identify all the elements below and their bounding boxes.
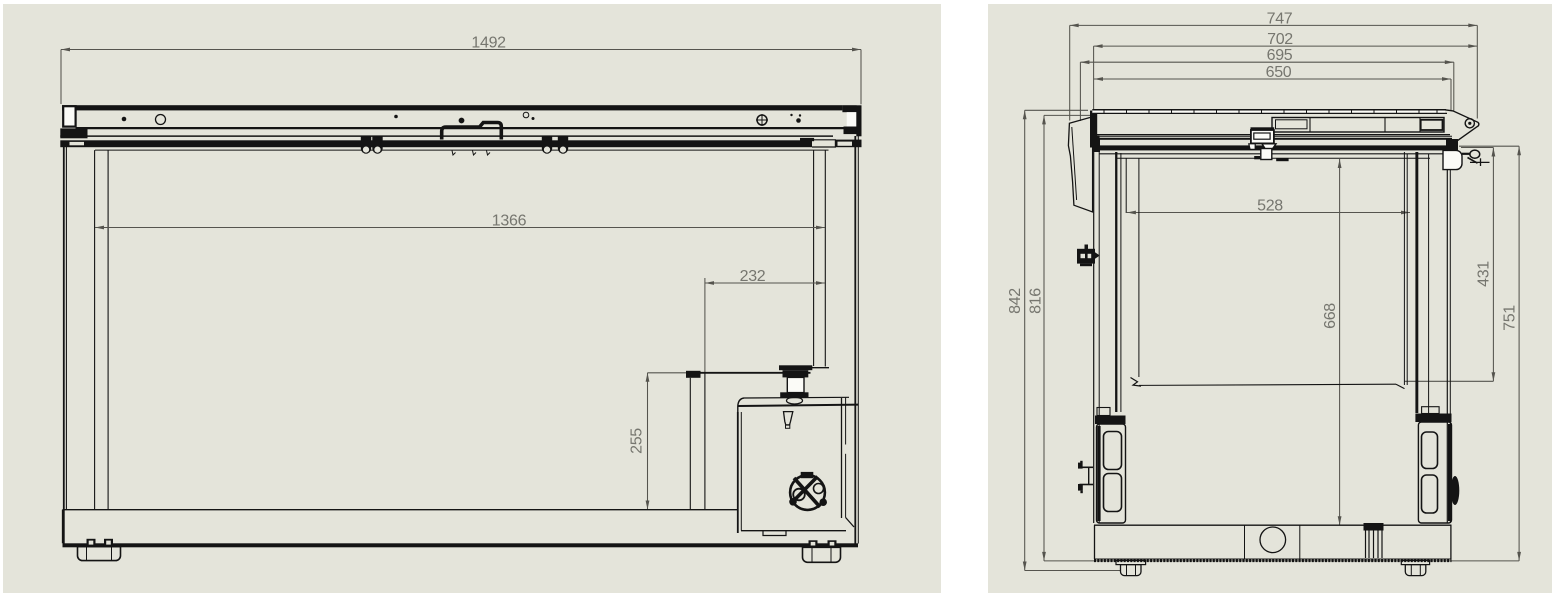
svg-text:1366: 1366 [492, 212, 527, 229]
svg-text:650: 650 [1266, 64, 1292, 81]
svg-text:431: 431 [1476, 261, 1493, 287]
svg-text:842: 842 [1007, 288, 1024, 314]
svg-text:1492: 1492 [471, 34, 506, 51]
svg-text:528: 528 [1257, 197, 1283, 214]
svg-text:747: 747 [1267, 10, 1293, 27]
svg-text:816: 816 [1028, 288, 1045, 314]
svg-text:751: 751 [1501, 305, 1518, 331]
svg-text:668: 668 [1322, 303, 1339, 329]
svg-text:255: 255 [629, 428, 646, 454]
svg-text:232: 232 [740, 268, 766, 285]
svg-text:702: 702 [1267, 31, 1293, 48]
svg-text:695: 695 [1267, 47, 1293, 64]
